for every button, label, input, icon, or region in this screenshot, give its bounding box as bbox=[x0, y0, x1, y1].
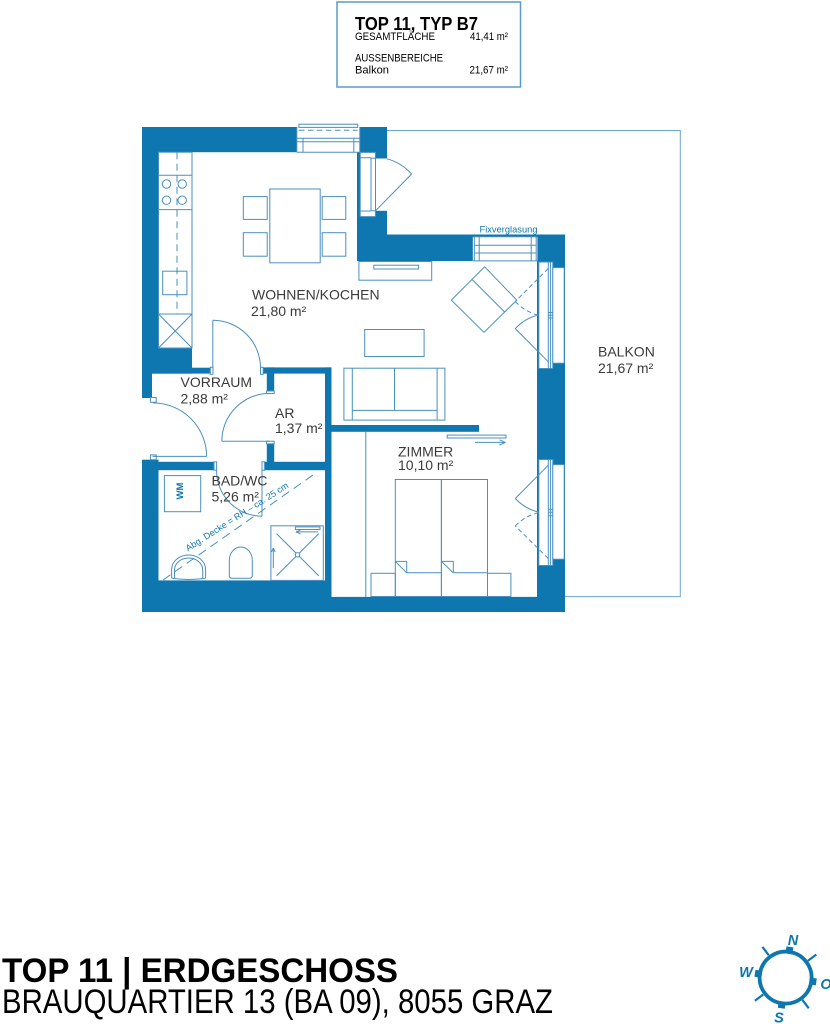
svg-text:Balkon: Balkon bbox=[355, 65, 389, 77]
svg-text:1,37 m²: 1,37 m² bbox=[275, 420, 323, 436]
svg-text:VORRAUM: VORRAUM bbox=[181, 374, 253, 390]
svg-text:S: S bbox=[774, 1011, 784, 1024]
svg-text:BAD/WC: BAD/WC bbox=[212, 473, 268, 489]
svg-text:21,67 m²: 21,67 m² bbox=[470, 65, 509, 77]
svg-text:GESAMTFLÄCHE: GESAMTFLÄCHE bbox=[355, 31, 435, 43]
svg-text:21,80 m²: 21,80 m² bbox=[251, 303, 307, 319]
svg-text:10,10 m²: 10,10 m² bbox=[398, 457, 454, 473]
svg-text:5,26 m²: 5,26 m² bbox=[212, 489, 260, 505]
svg-text:BALKON: BALKON bbox=[598, 344, 655, 360]
svg-text:O: O bbox=[820, 977, 830, 993]
svg-text:WM: WM bbox=[175, 482, 186, 499]
svg-text:N: N bbox=[788, 933, 799, 949]
svg-text:41,41 m²: 41,41 m² bbox=[470, 31, 508, 43]
svg-text:2,88 m²: 2,88 m² bbox=[181, 391, 229, 407]
svg-text:AR: AR bbox=[275, 405, 294, 421]
svg-text:W: W bbox=[739, 965, 754, 981]
svg-text:Fixverglasung: Fixverglasung bbox=[480, 225, 538, 235]
svg-text:21,67 m²: 21,67 m² bbox=[598, 360, 654, 376]
svg-text:AUSSENBEREICHE: AUSSENBEREICHE bbox=[355, 53, 443, 65]
svg-text:WOHNEN/KOCHEN: WOHNEN/KOCHEN bbox=[252, 287, 380, 303]
svg-text:BRAUQUARTIER 13 (BA 09), 8055: BRAUQUARTIER 13 (BA 09), 8055 GRAZ bbox=[2, 983, 553, 1021]
